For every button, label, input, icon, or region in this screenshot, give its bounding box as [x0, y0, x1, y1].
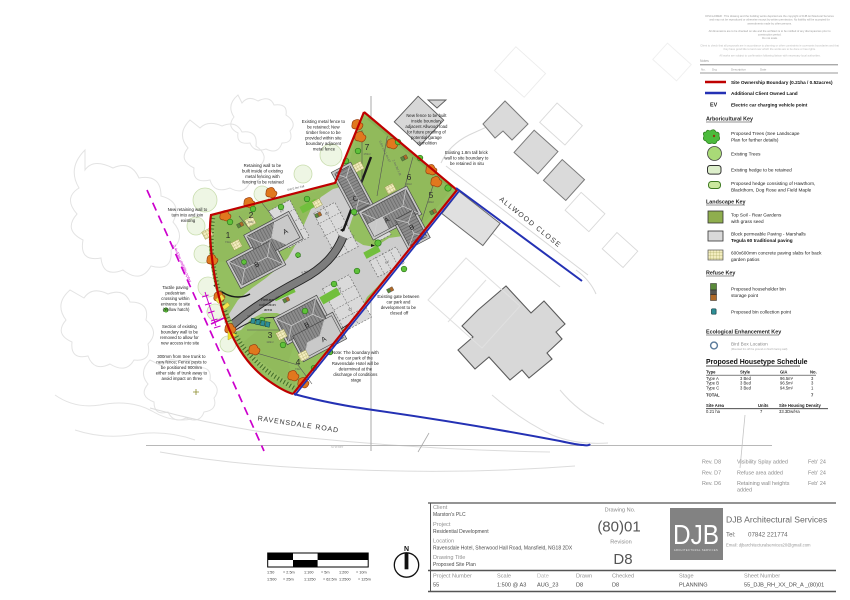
svg-text:D8: D8	[612, 583, 619, 589]
svg-text:2: 2	[249, 210, 254, 220]
svg-text:Rev. D8: Rev. D8	[702, 460, 721, 466]
svg-text:(Mounted 3m off the ground on: (Mounted 3m off the ground on North faci…	[731, 347, 787, 351]
svg-text:TOTAL: TOTAL	[706, 393, 720, 398]
svg-text:Visibility Splay added: Visibility Splay added	[737, 460, 788, 466]
svg-text:Electric car charging vehicle: Electric car charging vehicle point	[731, 102, 808, 107]
svg-text:D8: D8	[613, 551, 632, 568]
svg-text:Feb' 24: Feb' 24	[808, 481, 826, 487]
svg-text:Site Housing Density: Site Housing Density	[779, 403, 822, 408]
svg-text:N: N	[404, 546, 409, 553]
svg-text:Feb' 24: Feb' 24	[808, 460, 826, 466]
svg-text:1: 1	[226, 230, 231, 240]
svg-text:Proposed Site Plan: Proposed Site Plan	[433, 562, 476, 568]
svg-text:Block permeable Paving - Marsh: Block permeable Paving - Marshalls	[731, 231, 806, 236]
svg-text:74m²: 74m²	[295, 367, 301, 371]
svg-text:Type C: Type C	[706, 385, 719, 390]
svg-text:55_DJB_RH_XX_DR_A _(80)01: 55_DJB_RH_XX_DR_A _(80)01	[744, 583, 824, 589]
svg-text:Project: Project	[433, 522, 451, 528]
svg-text:70m²: 70m²	[248, 220, 254, 224]
svg-text:Site Area: Site Area	[706, 403, 725, 408]
svg-text:Date: Date	[537, 574, 549, 580]
svg-text:1:100: 1:100	[304, 571, 314, 575]
svg-text:Ecological Enhancement Key: Ecological Enhancement Key	[706, 330, 781, 336]
svg-text:added: added	[737, 488, 752, 494]
svg-text:90m²: 90m²	[428, 200, 434, 204]
svg-text:D8: D8	[576, 583, 583, 589]
svg-text:7: 7	[365, 142, 370, 152]
svg-text:EV: EV	[710, 102, 718, 108]
svg-text:Refuse area added: Refuse area added	[737, 470, 783, 476]
svg-text:Rev. D7: Rev. D7	[702, 470, 721, 476]
svg-text:AUG_23: AUG_23	[537, 583, 558, 589]
svg-text:Additional Client Owned Land: Additional Client Owned Land	[731, 91, 798, 96]
svg-text:Bird Box Location: Bird Box Location	[731, 341, 768, 346]
svg-text:= 5m: = 5m	[321, 571, 330, 575]
svg-text:33.3Dw/Ha: 33.3Dw/Ha	[779, 409, 800, 414]
svg-text:GIA: GIA	[780, 370, 787, 375]
svg-text:Tegula 60 traditional paving: Tegula 60 traditional paving	[731, 238, 793, 243]
svg-text:1:500: 1:500	[267, 578, 277, 582]
svg-text:Style: Style	[740, 370, 751, 375]
svg-text:07842 221774: 07842 221774	[748, 532, 788, 539]
svg-text:Site Ownership Boundary (0.21h: Site Ownership Boundary (0.21ha / 0.52ac…	[731, 80, 833, 85]
svg-text:DJB: DJB	[673, 519, 719, 550]
svg-text:300mm from tree trunk to new: 300mm from tree trunk to new fence; Fenc…	[156, 354, 209, 381]
svg-text:ARCHITECTURAL SERVICES: ARCHITECTURAL SERVICES	[674, 548, 718, 552]
svg-text:1:50: 1:50	[267, 571, 274, 575]
svg-text:90m²: 90m²	[406, 182, 412, 186]
svg-text:6: 6	[407, 172, 412, 182]
svg-text:Scale: Scale	[497, 574, 511, 580]
svg-text:3: 3	[268, 330, 273, 340]
svg-text:= 25m: = 25m	[283, 578, 294, 582]
svg-text:Proposed bin collection point: Proposed bin collection point	[731, 309, 792, 314]
svg-text:Stage: Stage	[679, 574, 694, 580]
svg-text:Tel:: Tel:	[726, 532, 736, 539]
svg-text:74m²: 74m²	[225, 240, 231, 244]
svg-text:Drawing Title: Drawing Title	[433, 555, 465, 561]
svg-text:Drawn: Drawn	[576, 574, 592, 580]
svg-text:Ravensdale Hotel, Sherwood Hal: Ravensdale Hotel, Sherwood Hall Road, Ma…	[433, 546, 573, 552]
svg-text:PLANNING: PLANNING	[679, 583, 708, 589]
svg-text:Proposed Housetype Schedule: Proposed Housetype Schedule	[706, 359, 808, 366]
svg-text:Residential Development: Residential Development	[433, 529, 489, 535]
svg-text:Checked: Checked	[612, 574, 634, 580]
svg-text:119m²: 119m²	[266, 340, 273, 344]
svg-text:1:2500: 1:2500	[339, 578, 351, 582]
svg-text:Type: Type	[706, 370, 716, 375]
svg-text:= 125m: = 125m	[358, 578, 371, 582]
svg-text:Project Number: Project Number	[433, 574, 472, 580]
svg-text:(80)01: (80)01	[597, 519, 640, 536]
svg-text:Existing 1.8m tall brick wal: Existing 1.8m tall brick wall to site bo…	[444, 150, 489, 166]
svg-text:Marston's PLC: Marston's PLC	[433, 512, 466, 518]
svg-text:Sheet Number: Sheet Number	[744, 574, 780, 580]
svg-text:Location: Location	[433, 539, 454, 545]
svg-text:Revision: Revision	[610, 540, 631, 546]
svg-text:Feb' 24: Feb' 24	[808, 470, 826, 476]
svg-text:3 Bed: 3 Bed	[740, 385, 752, 390]
svg-text:Tactile paving pedestrian: Tactile paving pedestrian crossing withi…	[161, 285, 192, 312]
svg-text:Existing Trees: Existing Trees	[731, 151, 761, 156]
svg-text:Existing hedge to be retained: Existing hedge to be retained	[731, 168, 792, 173]
svg-text:Section of existing boundary: Section of existing boundary wall to be …	[160, 324, 200, 346]
svg-text:Retaining wall to be built i: Retaining wall to be built inside of exi…	[242, 163, 284, 185]
svg-text:0.21 ha: 0.21 ha	[706, 409, 721, 414]
svg-text:Rev. D6: Rev. D6	[702, 481, 721, 487]
svg-text:55: 55	[433, 583, 439, 589]
svg-text:1:500 @ A3: 1:500 @ A3	[497, 583, 526, 589]
svg-text:Email: djbarchitecturalservice: Email: djbarchitecturalservices20@gmail.…	[726, 543, 811, 548]
svg-text:170m²: 170m²	[363, 152, 370, 156]
svg-text:4: 4	[296, 357, 301, 367]
svg-text:1:200: 1:200	[339, 571, 349, 575]
svg-text:Notes: Notes	[700, 59, 709, 63]
svg-text:Units: Units	[758, 403, 769, 408]
svg-text:= 10m: = 10m	[356, 571, 367, 575]
svg-text:1:1250: 1:1250	[304, 578, 316, 582]
svg-text:Client: Client	[433, 505, 448, 511]
svg-text:Refuse Key: Refuse Key	[706, 271, 735, 277]
svg-text:= 62.5m: = 62.5m	[323, 578, 337, 582]
svg-text:Landscape Key: Landscape Key	[706, 200, 746, 206]
svg-text:Retaining wall heights: Retaining wall heights	[737, 481, 790, 487]
svg-text:DJB Architectural Services: DJB Architectural Services	[726, 515, 827, 525]
svg-text:Shelter: Shelter	[331, 444, 344, 449]
svg-text:Proposed hedge consisting of H: Proposed hedge consisting of Hawthorn,Bl…	[731, 181, 815, 193]
svg-text:Arboricultural Key: Arboricultural Key	[706, 117, 753, 123]
svg-text:94.5m²: 94.5m²	[780, 385, 794, 390]
svg-text:Drawing No.: Drawing No.	[605, 508, 636, 514]
svg-text:No.: No.	[810, 370, 817, 375]
svg-text:= 2.5m: = 2.5m	[283, 571, 295, 575]
svg-text:5: 5	[429, 190, 434, 200]
